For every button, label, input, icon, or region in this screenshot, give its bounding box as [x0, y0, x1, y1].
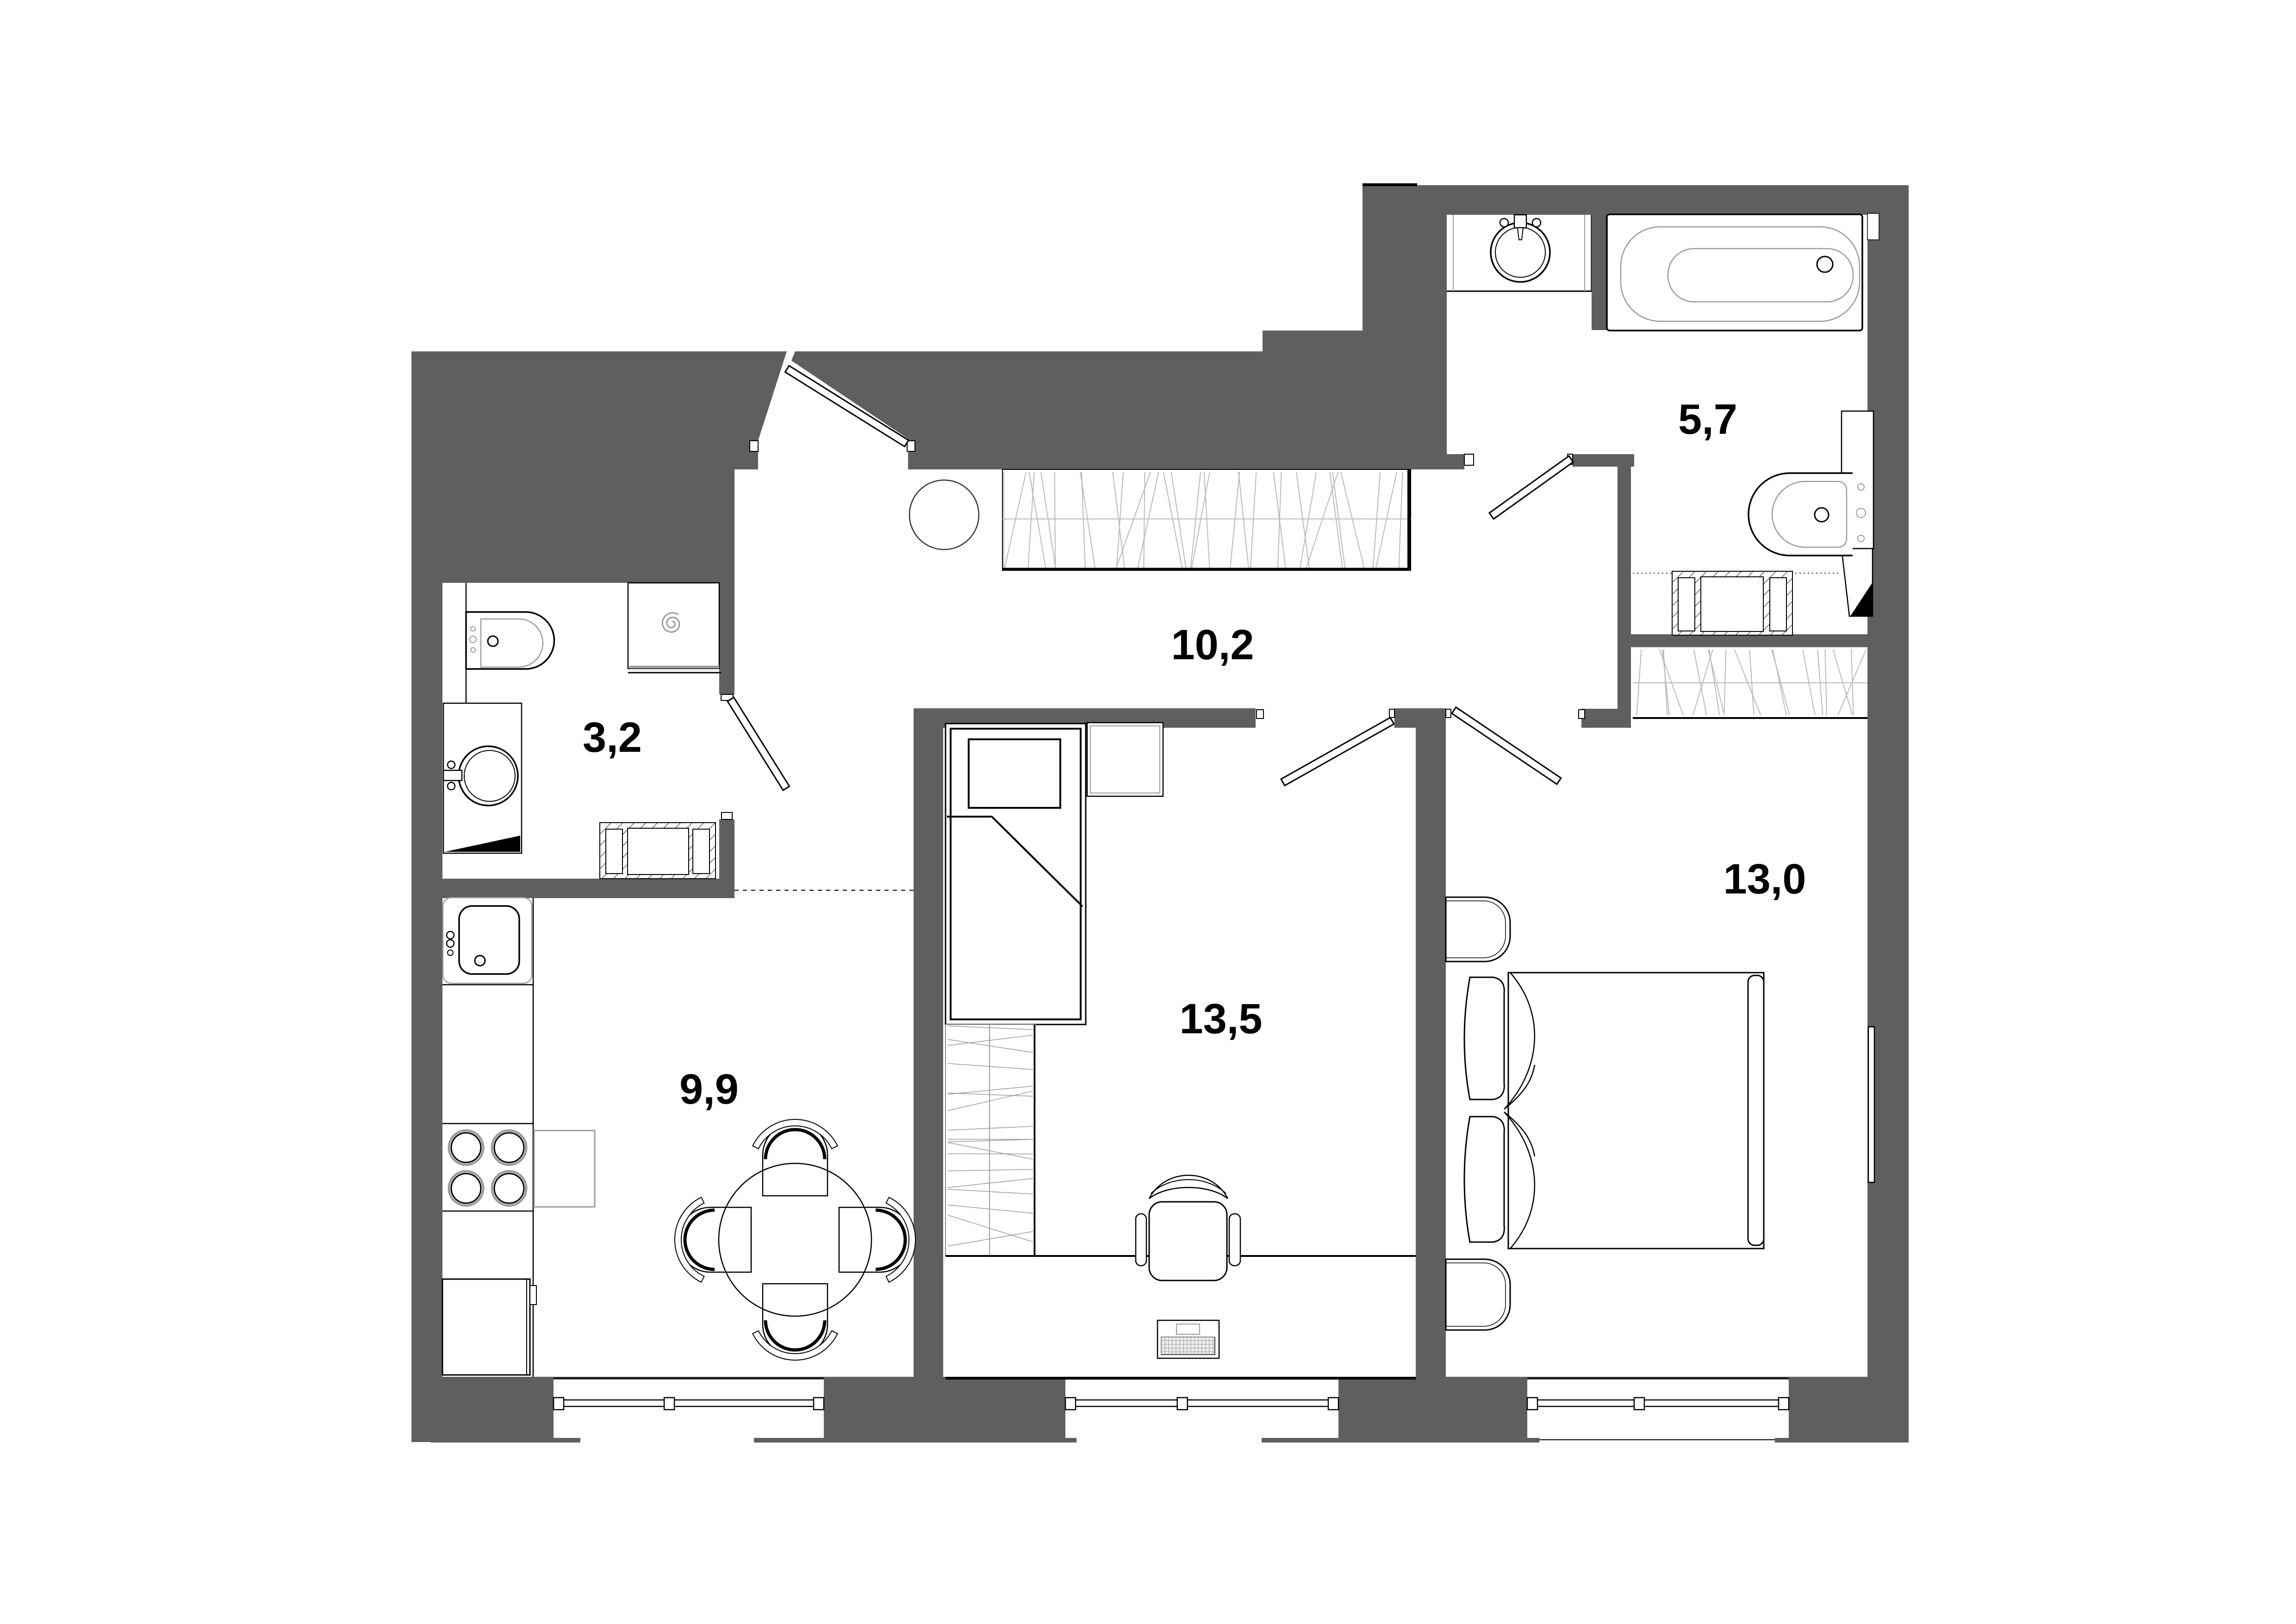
svg-text:13,0: 13,0: [1723, 856, 1806, 903]
svg-text:5,7: 5,7: [1678, 396, 1737, 443]
svg-text:9,9: 9,9: [679, 1066, 739, 1113]
svg-text:3,2: 3,2: [583, 714, 642, 761]
svg-text:10,2: 10,2: [1171, 621, 1254, 668]
svg-text:13,5: 13,5: [1179, 995, 1262, 1043]
